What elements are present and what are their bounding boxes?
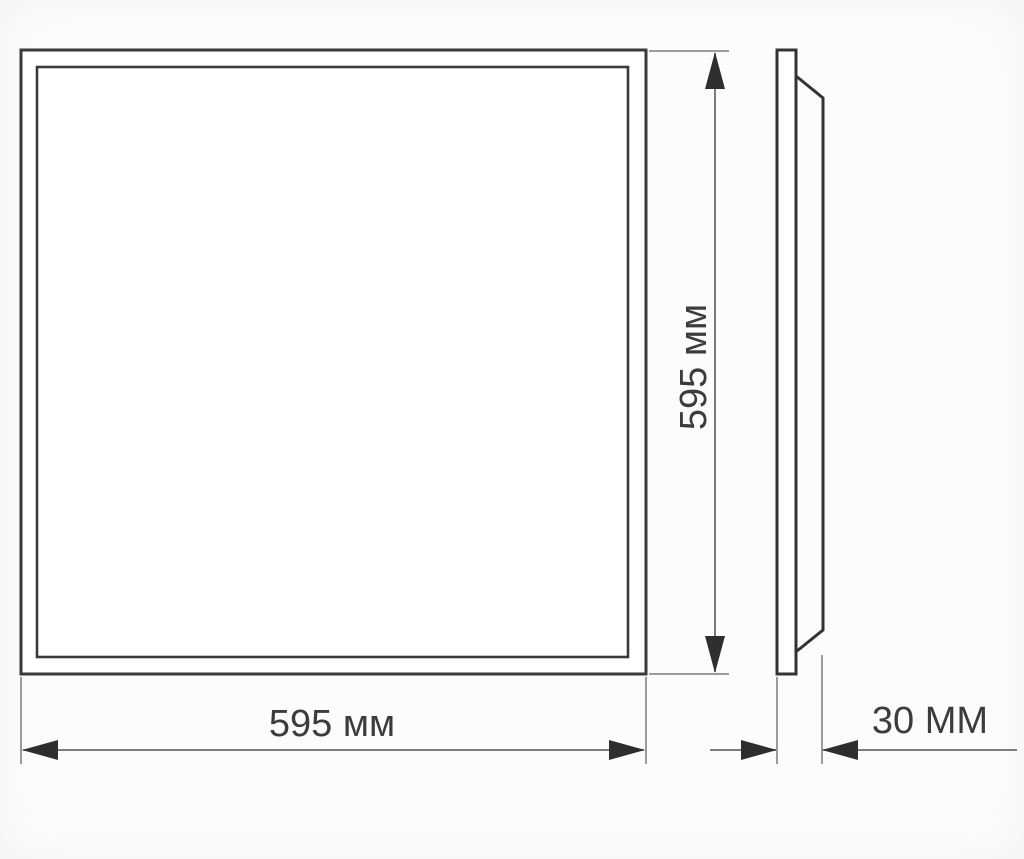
height-dimension-label: 595 мм xyxy=(673,304,715,430)
panel-side-view xyxy=(777,50,823,674)
arrow-right-icon xyxy=(741,740,777,760)
width-dimension-label: 595 мм xyxy=(269,703,395,745)
panel-front-outer-frame xyxy=(21,50,646,674)
panel-side-back-edge xyxy=(796,76,823,651)
height-dimension: 595 мм xyxy=(649,51,729,674)
arrow-right-icon xyxy=(609,740,645,760)
thickness-dimension: 30 ММ xyxy=(710,655,1017,764)
panel-front-view xyxy=(21,50,646,674)
dimension-drawing-page: 595 мм 595 мм 30 ММ xyxy=(0,0,1024,859)
panel-dimension-diagram: 595 мм 595 мм 30 ММ xyxy=(0,0,1024,859)
arrow-left-icon xyxy=(22,740,58,760)
thickness-dimension-label: 30 ММ xyxy=(872,700,988,742)
panel-side-front-edge xyxy=(777,50,796,674)
arrow-down-icon xyxy=(705,636,725,673)
width-dimension: 595 мм xyxy=(21,677,646,764)
arrow-up-icon xyxy=(705,52,725,89)
arrow-left-icon xyxy=(822,740,858,760)
